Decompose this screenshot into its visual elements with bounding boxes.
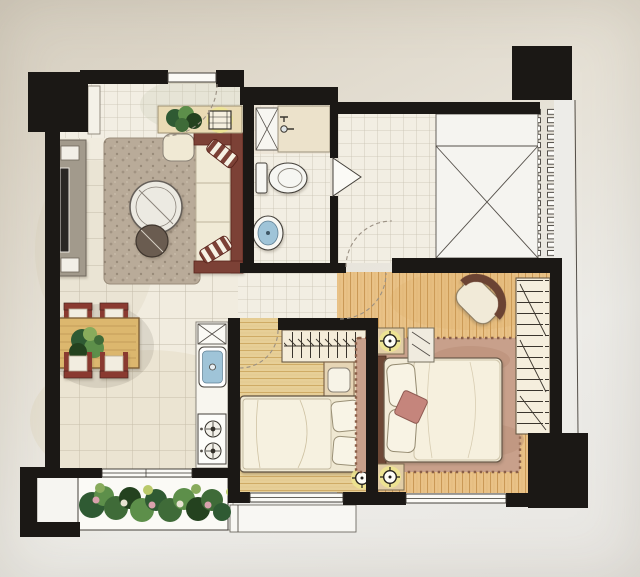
laundry-floor [338, 114, 436, 263]
master-window [406, 494, 506, 503]
dining-chair [100, 352, 128, 378]
wall-segment [240, 263, 346, 273]
flower [149, 502, 156, 509]
dining-chair [64, 352, 92, 378]
bedroom2-window [250, 493, 343, 502]
louver-grille [538, 107, 554, 258]
flower [93, 497, 100, 504]
wall-segment [550, 258, 562, 436]
shoe-cabinet [88, 86, 100, 134]
wall-segment [343, 492, 406, 505]
decor-tray [209, 111, 231, 129]
ceiling-lamp-master-top [379, 330, 401, 352]
tv [60, 168, 69, 252]
round-basin [253, 216, 283, 250]
floor-plan-photo [0, 0, 640, 577]
console-shelf [158, 106, 242, 133]
tv-cabinet [408, 328, 434, 362]
wardrobe-master [516, 278, 550, 434]
wall-segment [228, 318, 240, 492]
ceiling-lamp-master-bottom [379, 466, 401, 488]
single-bed [240, 396, 362, 472]
tv-console [58, 140, 86, 276]
wall-segment [20, 522, 80, 537]
sink-drain [210, 364, 216, 370]
console-box [61, 146, 79, 160]
kitchen [196, 322, 228, 468]
flower [177, 501, 184, 508]
wall-segment [506, 493, 530, 507]
wall-segment [28, 72, 88, 132]
flower [205, 502, 212, 509]
wall-segment [330, 196, 338, 263]
small-balcony-ledge [230, 505, 356, 532]
wall-corner-block [528, 433, 588, 508]
double-bed [374, 356, 502, 464]
balcony-sliding-door [102, 469, 192, 477]
toilet [256, 163, 307, 193]
wall-segment [216, 70, 244, 87]
wall-segment [192, 468, 240, 478]
wall-segment [45, 130, 60, 470]
wall-segment [243, 104, 254, 272]
wall-segment [336, 102, 540, 114]
flower [121, 500, 128, 507]
outer-ledge-line [575, 100, 578, 433]
sofa-frame-bottom [194, 261, 243, 273]
wall-segment [228, 492, 250, 503]
sofa [194, 133, 243, 273]
wall-segment [48, 468, 102, 478]
wall-segment [392, 258, 562, 273]
wall-segment [240, 87, 338, 105]
wall-segment [366, 318, 378, 492]
side-stool [136, 225, 168, 257]
wall-segment [80, 70, 168, 84]
wall-corner-block [512, 46, 572, 100]
floor-plan-canvas [0, 0, 640, 577]
balcony-planter [78, 477, 234, 530]
wall-segment [330, 104, 338, 158]
duvet [414, 360, 500, 460]
desk-chair [328, 368, 350, 392]
console-box [61, 258, 79, 272]
wall-segment [278, 318, 366, 330]
ottoman [163, 134, 194, 161]
utility-zone-floor [436, 114, 538, 258]
